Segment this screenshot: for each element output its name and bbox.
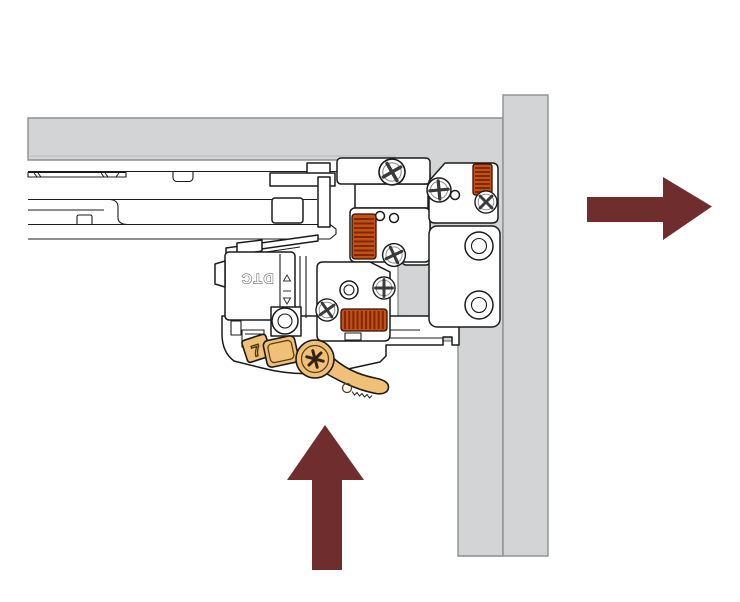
corner-bracket-lower — [429, 226, 500, 327]
screw-right-2 — [475, 191, 497, 213]
height-adjust-gear[interactable] — [341, 309, 387, 331]
push-up-arrow-icon — [287, 425, 364, 570]
drawer-slide-diagram: DTC 7 — [0, 0, 740, 602]
dtc-logo: DTC — [240, 271, 273, 287]
side-adjust-gear[interactable] — [473, 164, 492, 195]
slide-right-arrow-icon — [587, 177, 712, 240]
rail-end-tip — [330, 225, 336, 240]
rail-bump — [77, 215, 92, 225]
vertical-side-panel — [503, 95, 548, 556]
grommet — [272, 308, 298, 334]
diagram-stage: DTC 7 — [0, 0, 740, 602]
rail-tab — [173, 172, 193, 182]
roller-top — [465, 232, 493, 260]
top-bracket-cluster — [337, 156, 430, 269]
adjust-block — [314, 262, 399, 341]
depth-adjust-gear[interactable] — [352, 214, 376, 259]
rail-hatch-marks — [34, 173, 119, 177]
left-tab — [215, 261, 225, 287]
roller-bottom — [465, 291, 493, 319]
upper-brackets — [226, 163, 335, 258]
